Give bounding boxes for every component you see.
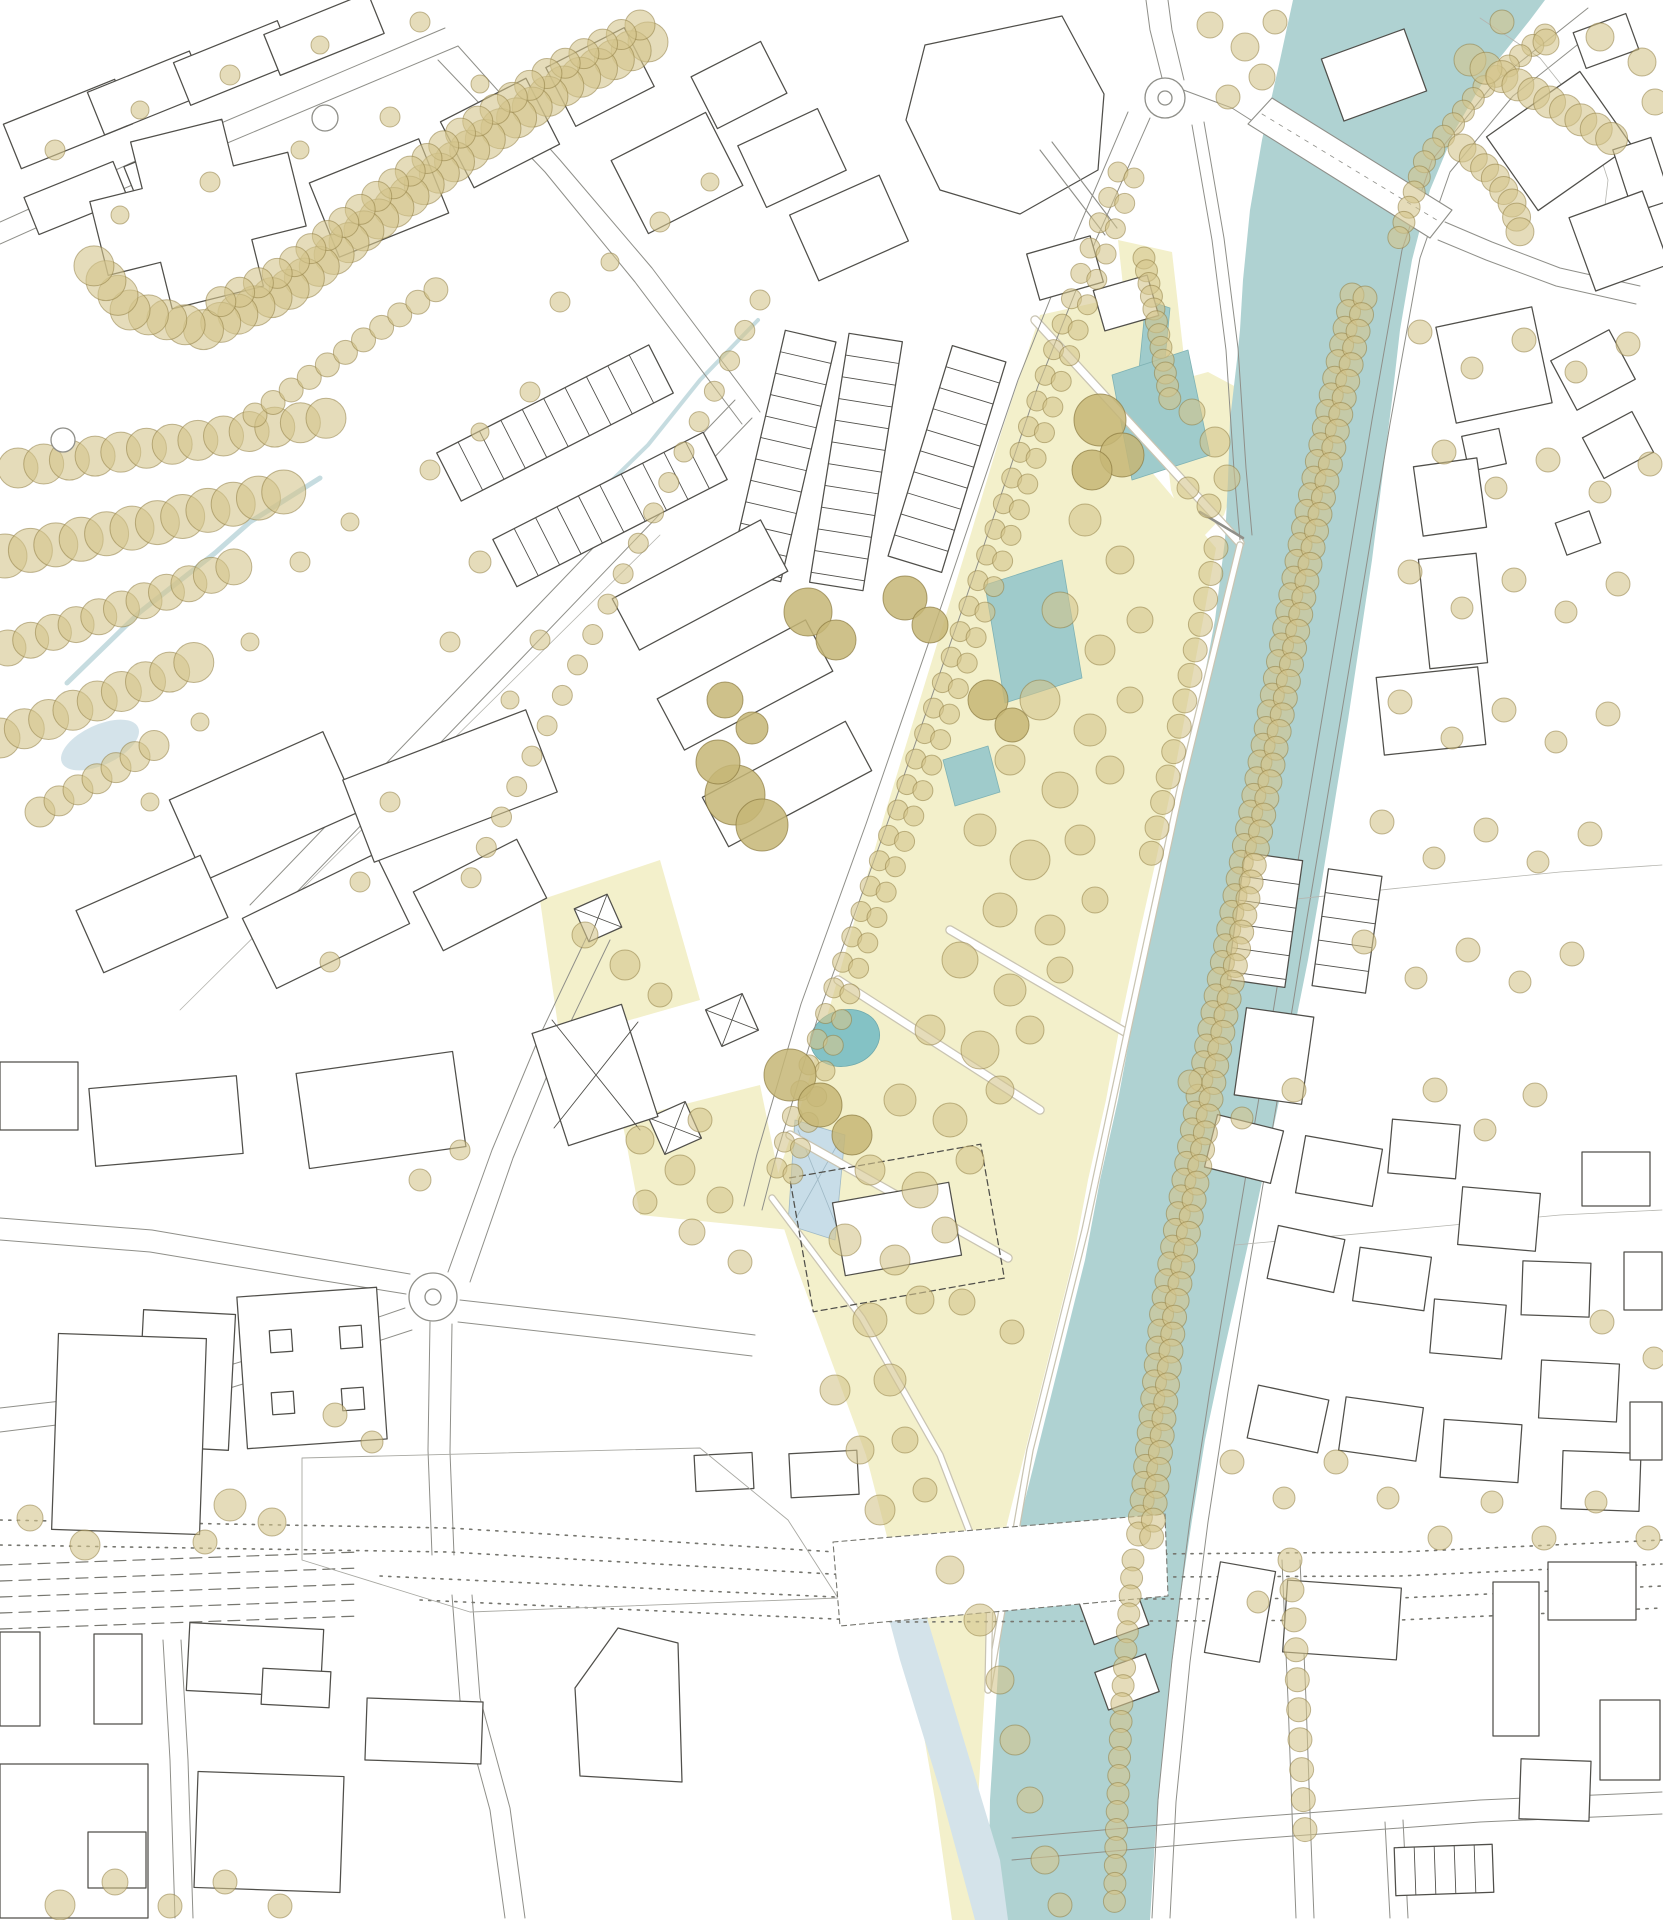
site-plan-svg [0,0,1663,1920]
site-plan-map: Riverside urban masterplan site plan [0,0,1663,1920]
rail-layer [0,1520,1662,1629]
